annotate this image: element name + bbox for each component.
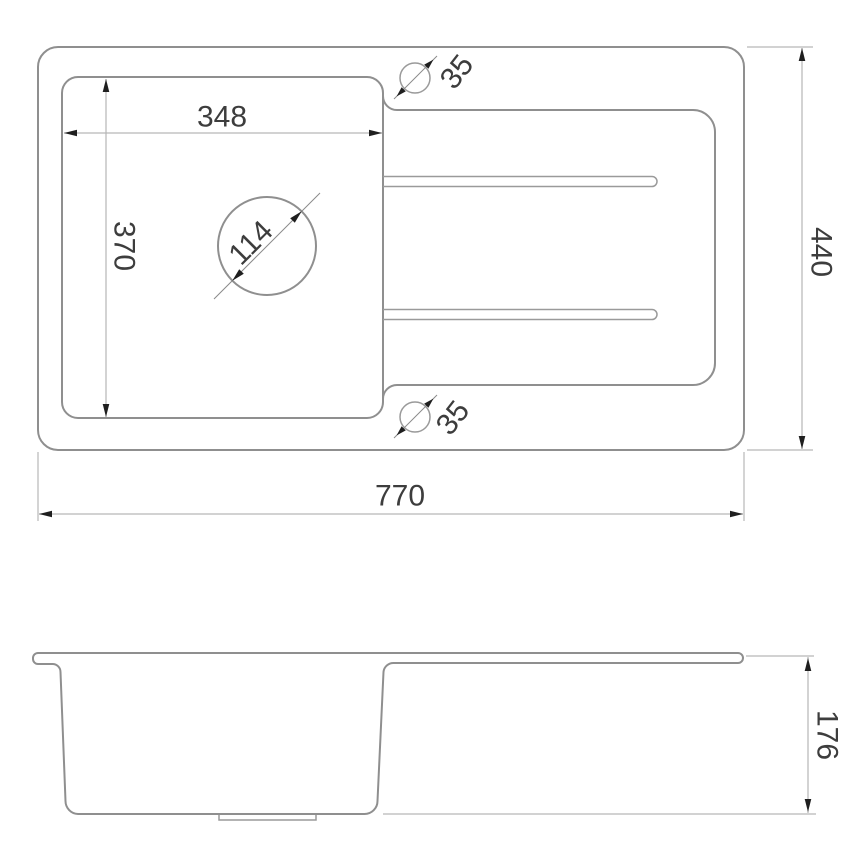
dim-bowl-depth-label: 370 [108,221,141,271]
dim-overall-width-label: 770 [375,480,425,513]
dim-overall-depth-arrow-top [799,48,806,61]
tap-hole-top: 35 [394,49,480,99]
tap-hole-bottom-label: 35 [430,395,477,442]
dim-bowl-width: 348 [64,101,382,137]
dim-overall-width: 770 [38,452,744,521]
dim-bowl-width-label: 348 [197,101,247,134]
dim-overall-height: 176 [383,656,844,814]
dim-overall-height-label: 176 [811,710,844,760]
dim-overall-height-arrow-bottom [805,799,812,812]
drainboard-outline [383,96,715,399]
drainboard-groove-bottom [383,310,657,320]
dim-overall-height-arrow-top [805,658,812,671]
dim-bowl-depth: 370 [103,79,141,417]
side-profile-outline [33,653,743,814]
drawing-svg: 35 35 114 348 [0,0,868,868]
dim-overall-width-arrow-left [39,511,52,518]
side-view: 176 [33,653,844,820]
side-drain-boss [219,815,316,820]
drainboard-groove-top [383,177,657,187]
tap-hole-top-label: 35 [434,49,481,96]
dim-bowl-width-arrow-left [64,130,77,137]
sink-dimension-drawing: 35 35 114 348 [0,0,868,868]
top-view: 35 35 114 348 [38,47,838,521]
dim-bowl-width-arrow-right [369,130,382,137]
dim-overall-width-arrow-right [730,511,743,518]
dim-bowl-depth-arrow-bottom [103,404,110,417]
dim-drain-diameter-label: 114 [222,214,279,271]
dim-overall-depth-arrow-bottom [799,436,806,449]
drain-opening: 114 [214,193,320,299]
dim-bowl-depth-arrow-top [103,79,110,92]
dim-overall-depth: 440 [747,47,838,450]
outer-rim-outline [38,47,744,450]
tap-hole-bottom: 35 [394,395,476,442]
dim-overall-depth-label: 440 [805,227,838,277]
